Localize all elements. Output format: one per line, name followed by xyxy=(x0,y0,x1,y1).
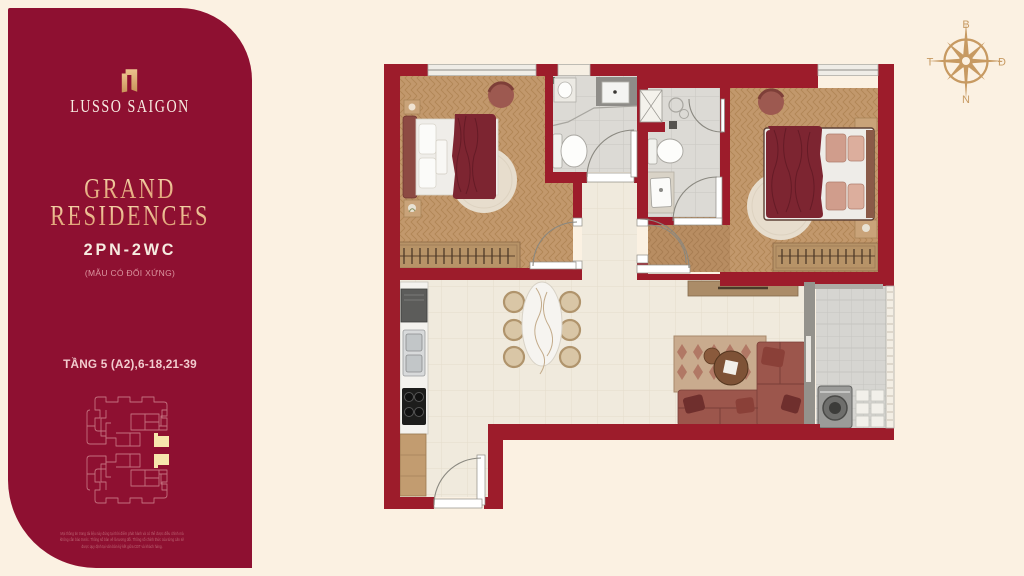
svg-text:N: N xyxy=(962,94,970,106)
svg-text:T: T xyxy=(927,57,934,69)
svg-text:B: B xyxy=(962,19,969,31)
svg-text:Đ: Đ xyxy=(998,57,1006,69)
